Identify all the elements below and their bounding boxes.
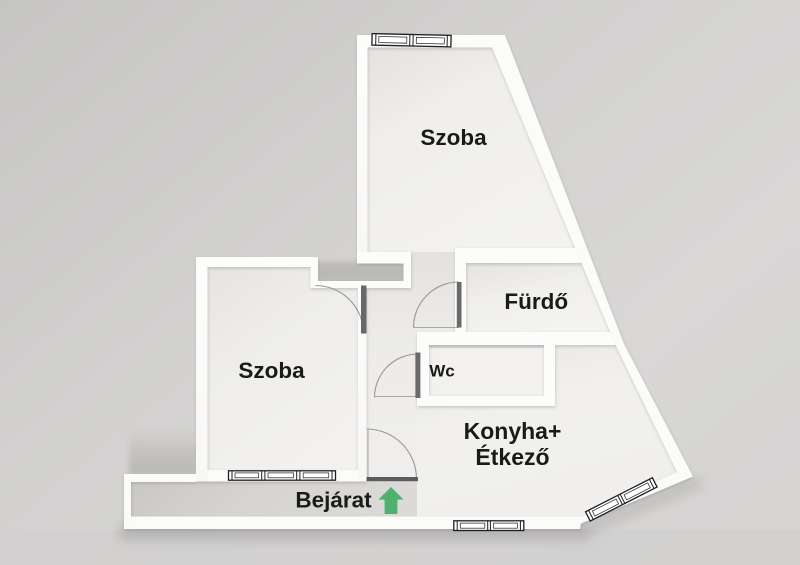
svg-text:Konyha+: Konyha+ <box>464 418 562 444</box>
svg-text:Szoba: Szoba <box>238 358 305 383</box>
svg-text:Szoba: Szoba <box>420 125 487 150</box>
svg-text:Bejárat: Bejárat <box>295 488 372 513</box>
svg-text:Fürdő: Fürdő <box>504 289 568 314</box>
svg-text:Étkező: Étkező <box>475 443 549 470</box>
svg-text:Wc: Wc <box>429 362 455 381</box>
